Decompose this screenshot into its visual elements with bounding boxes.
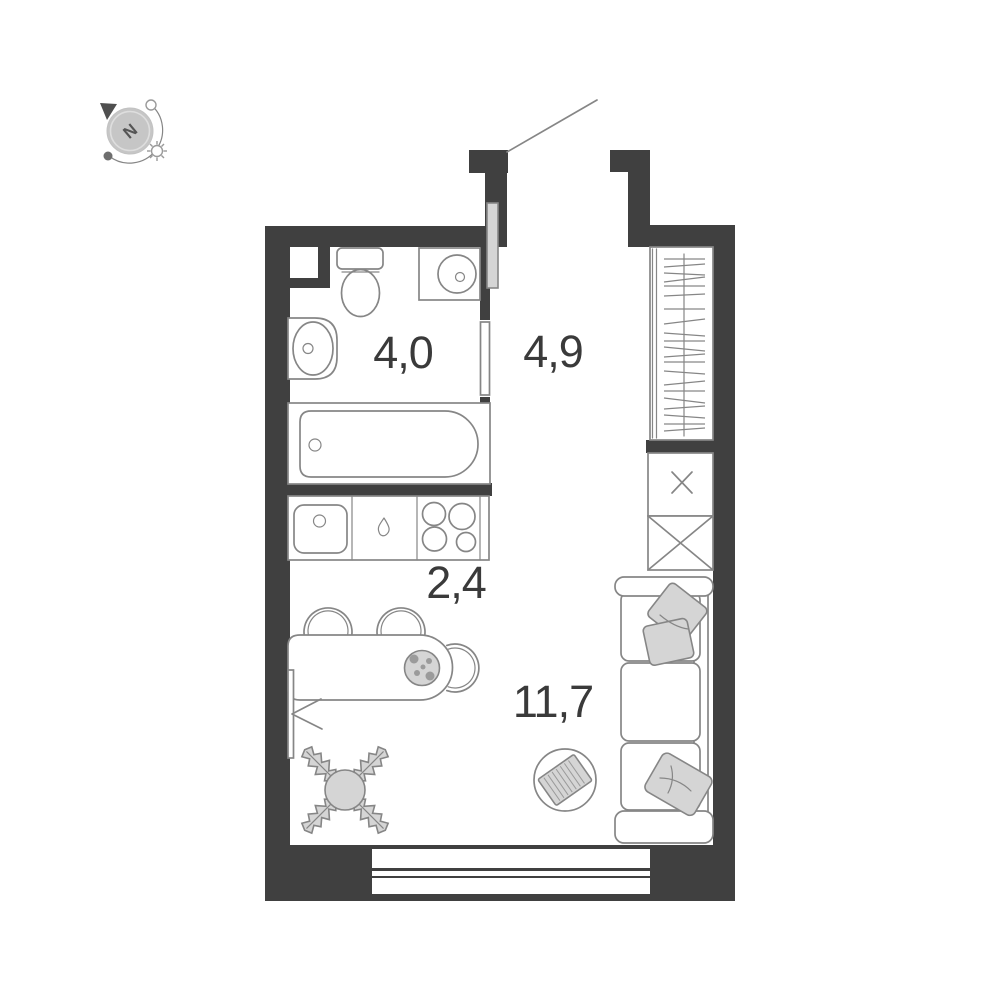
sofa [615,577,714,843]
window-inner-pane [372,878,650,894]
wall-top-bathroom [265,226,507,247]
bathroom-area-label: 4,0 [373,327,433,378]
bathroom-door-leaf [481,322,490,395]
wall-wardrobe-divider [646,440,713,453]
toilet [337,248,383,317]
window-outer-pane [372,849,650,868]
dining-area [288,608,479,758]
cabinet-small-x [648,453,713,516]
wall-right [713,225,735,901]
sun-icon [147,141,167,161]
window-gap [372,871,650,876]
wardrobe [650,247,713,440]
bathroom-sink [288,318,337,379]
wall-left [265,226,290,900]
kitchen-sink [294,505,347,553]
compass-dot-icon [104,152,113,161]
door-swing-line [507,100,597,152]
hallway-area-label: 4,9 [523,326,583,377]
vent-shaft-wall-horizontal [290,278,330,288]
bathroom-door [479,320,491,397]
sofa-seat [621,663,700,741]
entry-door-leaf [487,203,498,288]
floor-plan-page: 4,0 4,9 2,4 [0,0,1001,1001]
plant [298,743,393,838]
wall-bathroom-kitchen-partition [280,483,492,496]
washing-machine [419,248,480,300]
bathtub [288,403,490,484]
floor-plan-drawing: 4,0 4,9 2,4 [0,0,1001,1001]
compass-ring-icon [146,100,156,110]
window [372,849,650,894]
sofa-armrest-bottom [615,811,713,843]
compass-icon: N [100,100,167,163]
plate [405,651,440,686]
pouf [534,749,596,811]
hallway: 4,9 [523,326,583,377]
cabinet-large-x [648,516,713,570]
kitchen-area-label: 2,4 [426,557,486,608]
living-room-area-label: 11,7 [513,676,593,727]
kitchen: 2,4 [288,496,489,608]
